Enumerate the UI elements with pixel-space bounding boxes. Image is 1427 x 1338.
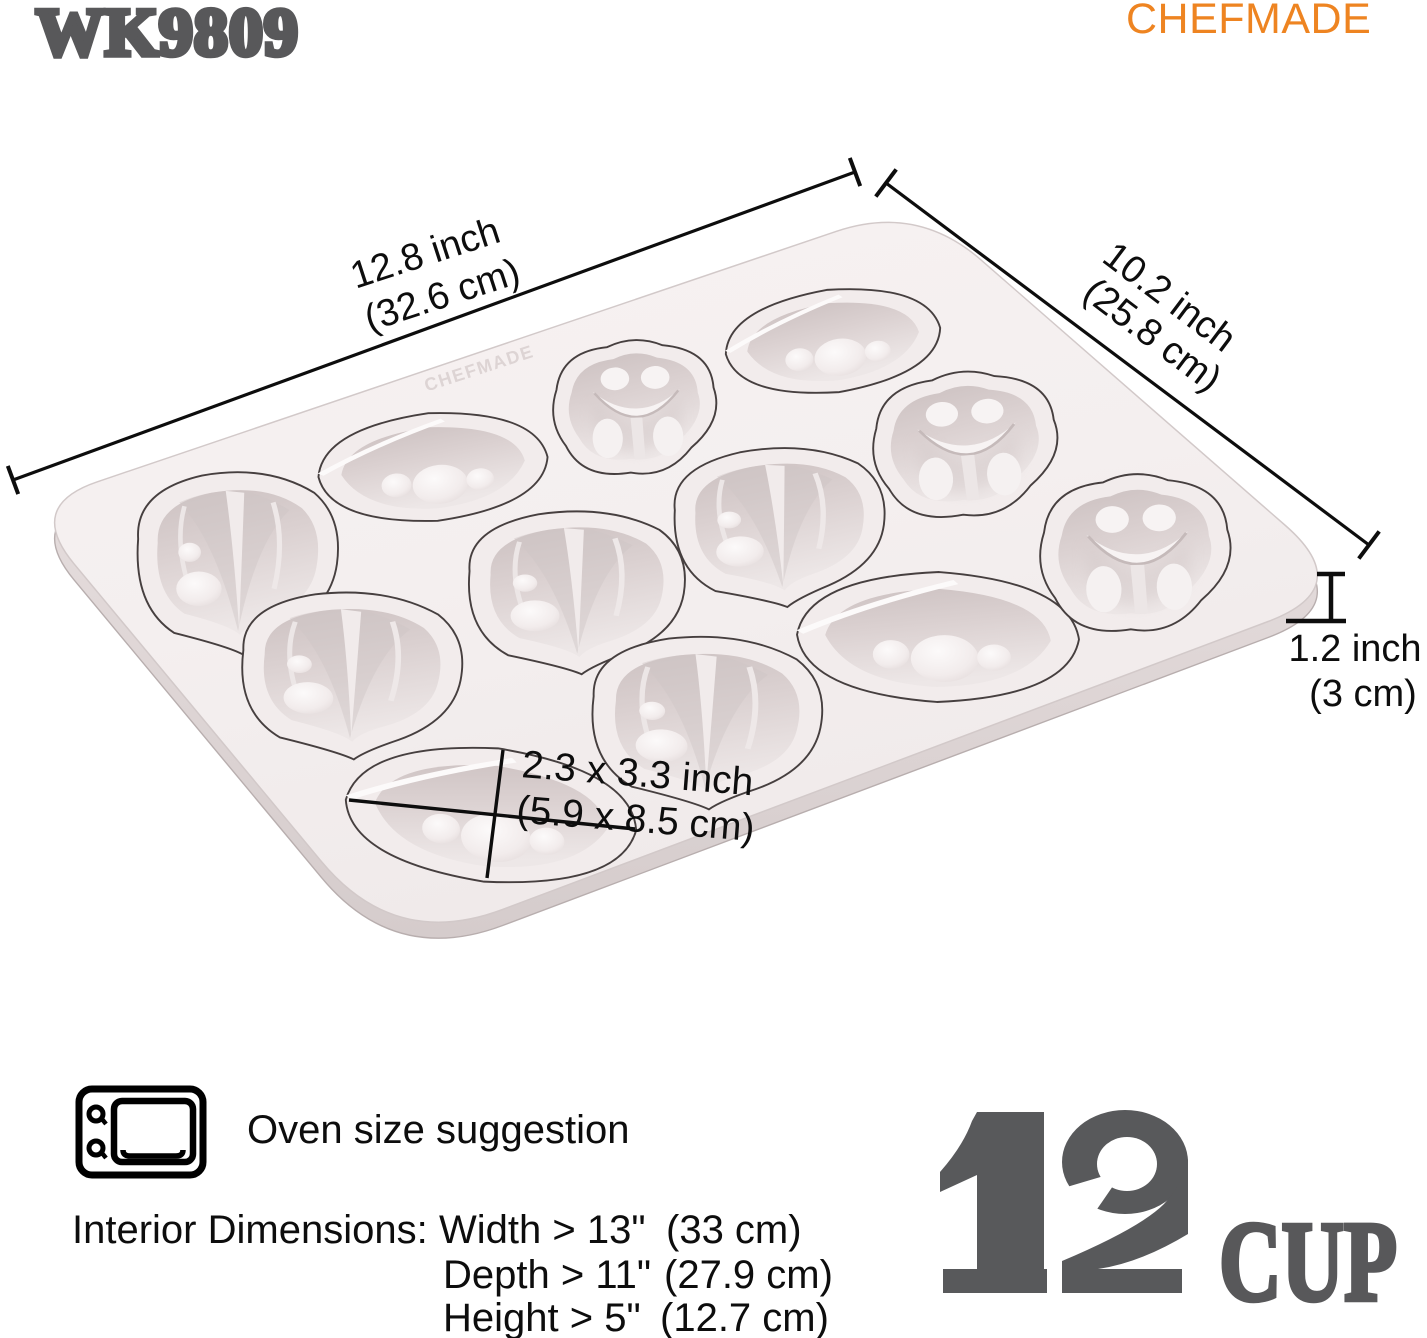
svg-text:CUP: CUP	[1219, 1199, 1397, 1325]
svg-text:Height > 5": Height > 5"	[443, 1296, 641, 1338]
svg-text:CHEFMADE: CHEFMADE	[1126, 0, 1371, 43]
svg-text:(3 cm): (3 cm)	[1309, 673, 1417, 715]
svg-text:Depth > 11": Depth > 11"	[443, 1253, 651, 1297]
svg-text:WK9809: WK9809	[36, 0, 299, 70]
svg-text:(33 cm): (33 cm)	[666, 1208, 802, 1252]
svg-text:1.2 inch: 1.2 inch	[1288, 628, 1421, 670]
svg-text:Interior Dimensions:: Interior Dimensions:	[72, 1208, 428, 1252]
svg-text:(27.9 cm): (27.9 cm)	[664, 1253, 833, 1297]
svg-text:(12.7 cm): (12.7 cm)	[660, 1296, 829, 1338]
svg-text:Width > 13": Width > 13"	[439, 1208, 646, 1252]
svg-text:Oven size suggestion: Oven size suggestion	[247, 1108, 629, 1152]
